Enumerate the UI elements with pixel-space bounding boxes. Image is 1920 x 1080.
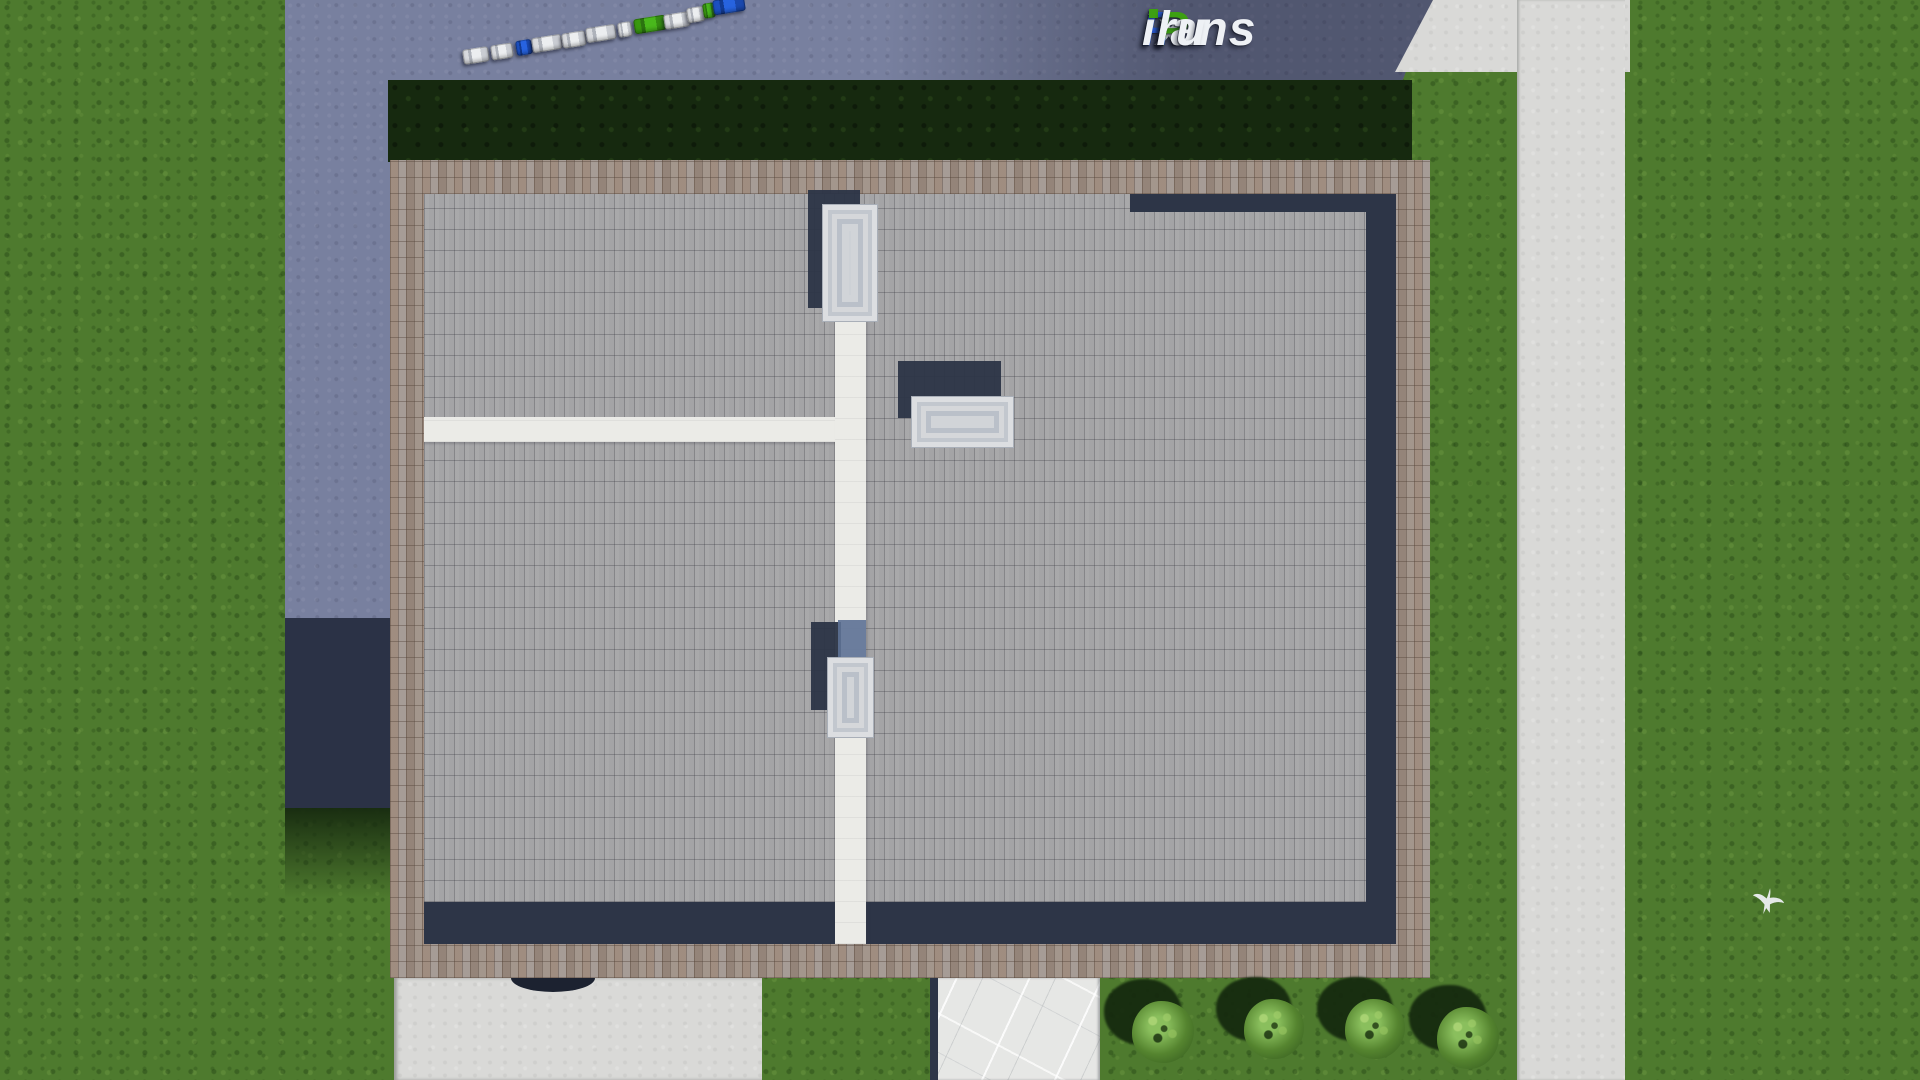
skylight-horizontal-mid xyxy=(911,396,1014,448)
aerial-render: FixPlans.ru xyxy=(0,0,1920,1080)
sidewalk xyxy=(1517,0,1625,1080)
parked-car-blue xyxy=(515,39,533,56)
parked-car-white xyxy=(531,34,563,54)
parked-car-white xyxy=(585,24,617,44)
logo-letter-i: i xyxy=(1142,2,1156,57)
arch-shadow xyxy=(511,978,595,992)
parked-car-white xyxy=(462,46,490,65)
roof-path-horizontal xyxy=(424,417,866,442)
building-shadow-on-grass xyxy=(285,808,390,898)
parked-car-white xyxy=(561,30,587,49)
flat-roof-building xyxy=(390,160,1430,978)
shadow-lawn-strip xyxy=(388,80,1412,162)
parked-cars xyxy=(0,0,1920,90)
building-shadow-on-alley xyxy=(285,618,390,808)
fixplans-logo: FixPlans.ru xyxy=(1142,2,1156,57)
marble-walkway xyxy=(938,978,1100,1080)
parapet-shadow-top-right xyxy=(1130,194,1396,212)
parked-car-blue xyxy=(712,0,746,15)
parked-car-green xyxy=(633,15,667,35)
bird xyxy=(1749,884,1787,922)
driveway xyxy=(394,978,762,1080)
parapet-shadow-right xyxy=(1366,194,1396,905)
parapet-shadow-bottom xyxy=(424,902,1396,944)
parked-car-white xyxy=(490,42,514,60)
parked-car-white xyxy=(617,21,633,38)
skylight-vertical-top xyxy=(822,204,878,322)
side-alley xyxy=(285,0,390,618)
skylight-vertical-bottom xyxy=(827,657,874,738)
logo-letters: ru xyxy=(1156,2,1206,57)
roof-tiles xyxy=(424,194,1396,944)
